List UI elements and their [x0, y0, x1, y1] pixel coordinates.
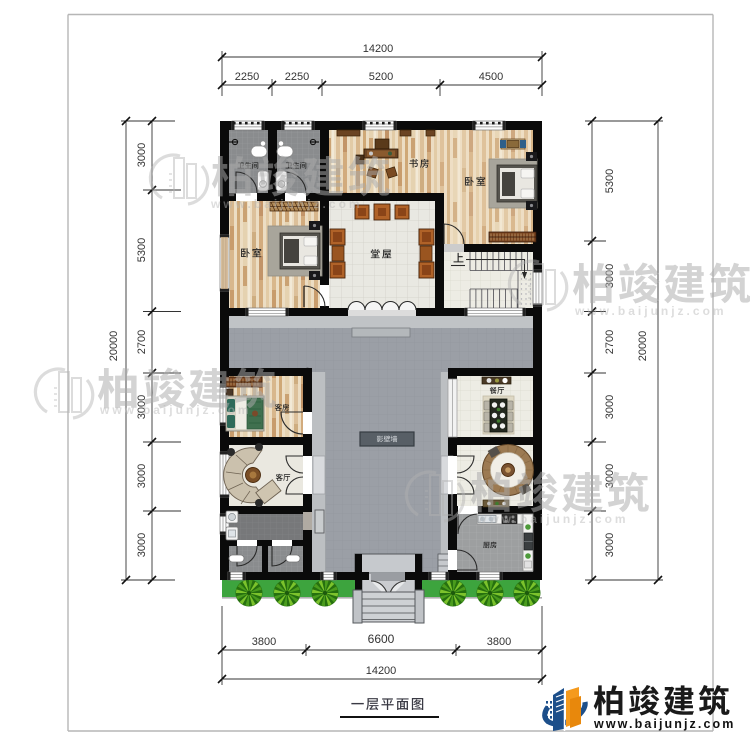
svg-text:2250: 2250: [285, 71, 309, 83]
svg-text:3800: 3800: [252, 636, 276, 648]
svg-text:3000: 3000: [136, 143, 148, 167]
svg-text:3000: 3000: [136, 464, 148, 488]
svg-text:5300: 5300: [604, 169, 616, 193]
svg-text:www.baijunjz.com: www.baijunjz.com: [574, 304, 727, 318]
svg-text:20000: 20000: [637, 331, 649, 362]
svg-text:3000: 3000: [604, 395, 616, 419]
svg-text:5300: 5300: [136, 238, 148, 262]
svg-text:5200: 5200: [369, 71, 393, 83]
svg-text:3800: 3800: [487, 636, 511, 648]
svg-text:www.baijunjz.com: www.baijunjz.com: [99, 403, 252, 417]
svg-text:2700: 2700: [136, 330, 148, 354]
svg-text:4500: 4500: [479, 71, 503, 83]
svg-text:www.baijunjz.com: www.baijunjz.com: [593, 717, 735, 731]
svg-text:14200: 14200: [363, 43, 394, 55]
svg-text:2250: 2250: [235, 71, 259, 83]
svg-text:6600: 6600: [368, 632, 395, 646]
svg-text:3000: 3000: [136, 533, 148, 557]
svg-text:3000: 3000: [604, 533, 616, 557]
svg-text:www.baijunjz.com: www.baijunjz.com: [210, 197, 363, 211]
svg-text:14200: 14200: [366, 665, 397, 677]
svg-text:20000: 20000: [108, 331, 120, 362]
svg-text:2700: 2700: [604, 330, 616, 354]
svg-text:www.baijunjz.com: www.baijunjz.com: [476, 512, 629, 526]
